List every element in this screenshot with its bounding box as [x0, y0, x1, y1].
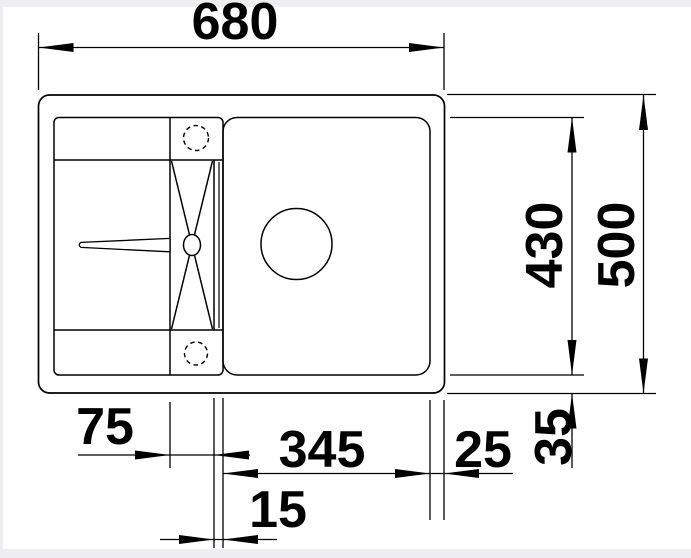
dim-35: 35 [525, 394, 583, 469]
dim-680-label: 680 [192, 0, 279, 51]
dim-35-label: 35 [525, 408, 583, 466]
dim-75: 75 [76, 398, 250, 468]
arrowhead-left [214, 451, 249, 460]
arrowhead-left [39, 43, 74, 52]
dim-430-label: 430 [516, 202, 574, 289]
tap-hole-bottom [185, 342, 208, 365]
drain-circle [261, 209, 332, 280]
dim-75-label: 75 [76, 398, 134, 456]
arrowhead-right [179, 535, 214, 544]
arrowhead-left [223, 469, 258, 478]
arrowhead-up [639, 95, 648, 130]
dim-15-label: 15 [249, 481, 307, 539]
arrowhead-down [639, 359, 648, 394]
drain-lever [79, 238, 170, 251]
sink-dimension-drawing: 680 500 430 35 75 345 [0, 0, 691, 558]
arrowhead-up [568, 118, 577, 153]
dim-345-label: 345 [279, 421, 366, 479]
x-channel-hub [184, 235, 201, 256]
dim-25: 25 [444, 421, 512, 479]
dim-430: 430 [450, 118, 584, 376]
x-channel [172, 161, 213, 329]
arrowhead-down [568, 340, 577, 375]
arrowhead-right [135, 451, 170, 460]
dim-500-label: 500 [588, 202, 646, 289]
bowl-outline [223, 118, 430, 376]
tap-hole-top [184, 126, 209, 151]
arrowhead-right [409, 43, 444, 52]
dim-680: 680 [39, 0, 445, 90]
sink-body [39, 95, 445, 393]
dim-25-label: 25 [454, 421, 512, 479]
arrowhead-right [395, 469, 430, 478]
